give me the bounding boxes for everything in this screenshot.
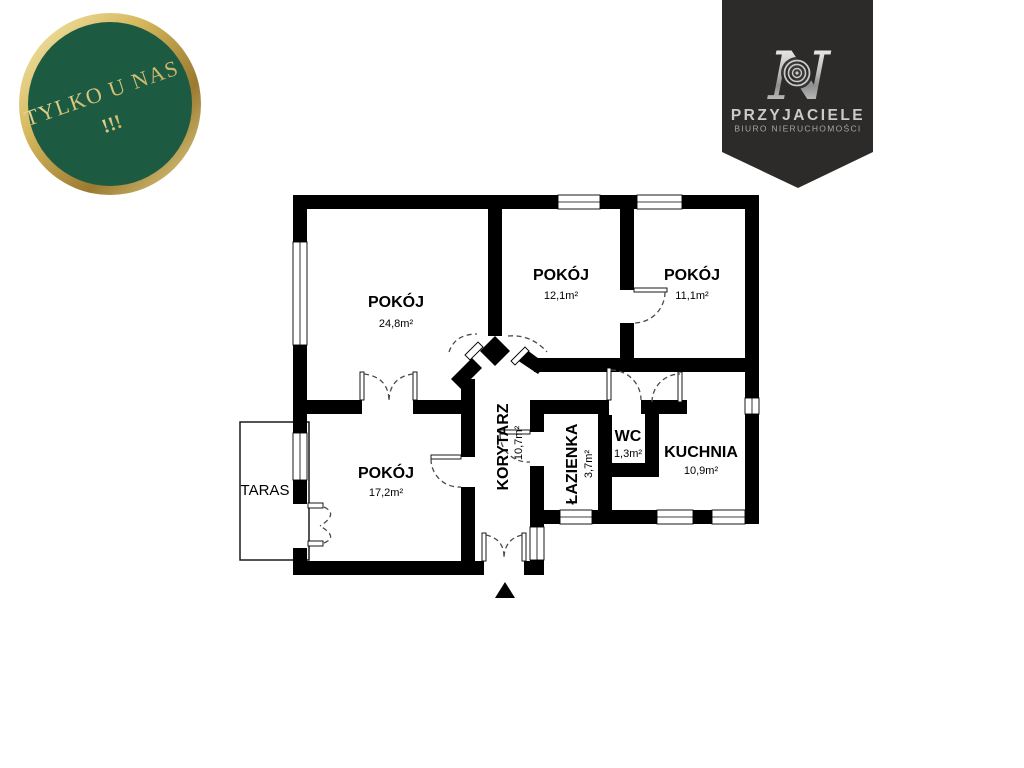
- floorplan-canvas: TYLKO U NAS !!! N PRZYJACIELE BIURO NIER…: [0, 0, 1024, 768]
- room-label-kuchnia: KUCHNIA: [664, 444, 738, 461]
- room-area-pokoj-3: 11,1m²: [675, 290, 709, 302]
- room-area-lazienka: 3,7m²: [583, 450, 595, 478]
- room-area-pokoj-4: 17,2m²: [369, 487, 404, 499]
- room-label-pokoj-1: POKÓJ: [368, 292, 424, 311]
- room4-door: [431, 455, 461, 487]
- room-label-pokoj-3: POKÓJ: [664, 265, 720, 284]
- promo-badge: TYLKO U NAS !!!: [19, 13, 201, 195]
- room-label-taras: TARAS: [241, 482, 290, 499]
- wall-bath-right: [598, 400, 612, 524]
- window-room3-top: [637, 195, 682, 209]
- wall-wc-bottom: [598, 463, 659, 477]
- window-kitchen-right: [745, 398, 759, 414]
- gap-wc-door: [609, 399, 641, 415]
- gap-taras-door: [292, 504, 308, 548]
- gap-bath-door: [529, 432, 545, 466]
- entrance-marker-icon: [495, 582, 515, 598]
- room3-door: [634, 288, 667, 323]
- wall-room1-room4-right: [413, 400, 461, 414]
- wall-bath-top: [530, 400, 609, 414]
- room-area-kuchnia: 10,9m²: [684, 465, 719, 477]
- room-label-pokoj-2: POKÓJ: [533, 265, 589, 284]
- wall-room1-room2: [488, 195, 502, 336]
- kitchen-door: [652, 372, 682, 402]
- window-kitchen-bottom-2: [712, 510, 745, 524]
- room-label-lazienka: ŁAZIENKA: [564, 423, 581, 504]
- wall-room1-room4-left: [293, 400, 362, 414]
- window-room4-left: [293, 433, 307, 480]
- window-room2-top: [558, 195, 600, 209]
- taras-french-door: [308, 503, 331, 546]
- entrance-door: [482, 533, 526, 561]
- room-area-wc: 1,3m²: [614, 448, 642, 460]
- room-area-pokoj-1: 24,8m²: [379, 318, 414, 330]
- room-label-pokoj-4: POKÓJ: [358, 463, 414, 482]
- gap-entrance-door: [484, 560, 524, 576]
- wall-diamond-pillar: [480, 336, 510, 366]
- wc-door: [607, 368, 641, 400]
- room-area-korytarz: 10,7m²: [513, 426, 525, 461]
- wall-room2-room3-lower: [620, 323, 634, 358]
- agency-name: PRZYJACIELE: [731, 107, 865, 124]
- room-label-wc: WC: [615, 428, 642, 445]
- agency-subtitle: BIURO NIERUCHOMOŚCI: [734, 123, 861, 134]
- wall-room2-room3-upper: [620, 195, 634, 290]
- window-kitchen-bottom-1: [657, 510, 693, 524]
- wall-corridor-left-lower: [461, 487, 475, 561]
- window-corridor-lower: [530, 527, 544, 560]
- corridor-room1-diagonal-door: [449, 334, 483, 360]
- window-bath-bottom: [560, 510, 592, 524]
- real-estate-floorplan-page: TYLKO U NAS !!! N PRZYJACIELE BIURO NIER…: [0, 0, 1024, 768]
- wall-corridor-left-upper: [461, 379, 475, 457]
- agency-ribbon: N PRZYJACIELE BIURO NIERUCHOMOŚCI: [722, 0, 873, 188]
- logo-spiral-icon: [781, 57, 813, 89]
- floor-plan: POKÓJ 24,8m² POKÓJ 12,1m² POKÓJ 11,1m² P…: [240, 195, 759, 598]
- room-area-pokoj-2: 12,1m²: [544, 290, 579, 302]
- window-room1-left: [293, 242, 307, 345]
- wall-exterior-top: [293, 195, 759, 209]
- wall-hall-top: [534, 358, 759, 372]
- room-label-korytarz: KORYTARZ: [495, 403, 512, 490]
- room1-room4-french-door: [360, 372, 417, 400]
